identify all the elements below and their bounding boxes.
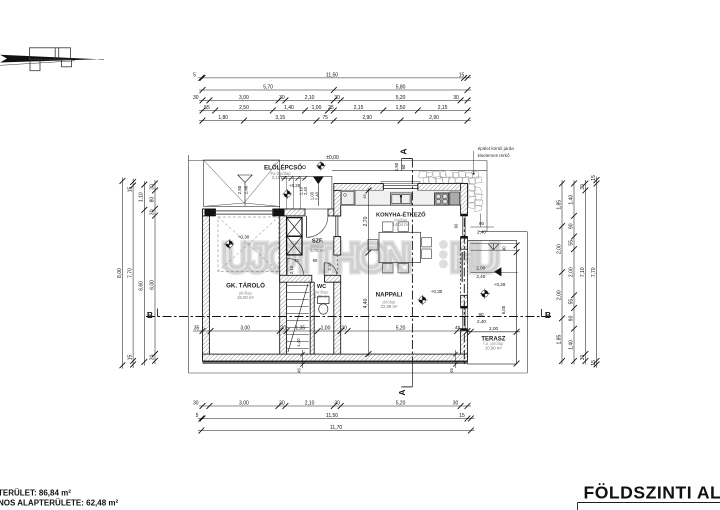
svg-text:30: 30 xyxy=(279,400,285,406)
svg-text:22,88 m²: 22,88 m² xyxy=(381,304,399,309)
svg-text:2,90: 2,90 xyxy=(362,115,372,121)
svg-text:30: 30 xyxy=(453,400,459,406)
svg-text:30: 30 xyxy=(341,325,347,331)
svg-text:3,00: 3,00 xyxy=(239,400,249,406)
svg-text:5,80: 5,80 xyxy=(396,84,406,90)
svg-text:4,40: 4,40 xyxy=(363,298,369,308)
svg-text:+0,28: +0,28 xyxy=(289,183,301,188)
svg-text:55: 55 xyxy=(568,240,574,246)
svg-text:1,35: 1,35 xyxy=(295,325,305,331)
svg-text:90: 90 xyxy=(568,223,574,229)
svg-text:2,40: 2,40 xyxy=(477,319,486,324)
svg-text:5,20: 5,20 xyxy=(396,325,406,331)
svg-text:2,10: 2,10 xyxy=(327,262,332,271)
svg-text:3,00: 3,00 xyxy=(239,95,249,101)
svg-text:45: 45 xyxy=(449,368,454,373)
svg-text:45: 45 xyxy=(363,194,367,198)
svg-text:2,10: 2,10 xyxy=(305,400,315,406)
svg-text:FÖLDSZINTI ALAPRAJZ: FÖLDSZINTI ALAPRAJZ xyxy=(584,483,720,503)
svg-text:2,40: 2,40 xyxy=(476,274,485,279)
svg-text:5: 5 xyxy=(196,413,199,419)
svg-text:11,50: 11,50 xyxy=(326,72,338,78)
svg-text:30: 30 xyxy=(453,95,459,101)
svg-text:1,40: 1,40 xyxy=(568,340,574,350)
svg-text:5,00: 5,00 xyxy=(501,305,506,314)
svg-text:1,80 m²: 1,80 m² xyxy=(314,294,329,299)
svg-text:30: 30 xyxy=(193,400,199,406)
svg-text:6,00: 6,00 xyxy=(149,280,155,290)
svg-text:2,00: 2,00 xyxy=(556,244,562,254)
svg-text:1,00: 1,00 xyxy=(312,105,322,111)
svg-text:6,60: 6,60 xyxy=(139,281,145,291)
svg-text:15: 15 xyxy=(459,72,465,78)
svg-text:45: 45 xyxy=(296,368,301,373)
svg-text:55: 55 xyxy=(568,299,574,305)
svg-text:10,90 m²: 10,90 m² xyxy=(485,346,503,351)
svg-text:30: 30 xyxy=(193,95,199,101)
svg-text:30: 30 xyxy=(149,354,155,360)
svg-text:15: 15 xyxy=(128,187,134,193)
svg-text:30: 30 xyxy=(334,95,340,101)
svg-text:30: 30 xyxy=(149,209,155,215)
svg-text:15: 15 xyxy=(591,175,597,181)
svg-text:2,15: 2,15 xyxy=(354,105,364,111)
svg-text:1,40: 1,40 xyxy=(568,195,574,205)
svg-text:±0,00: ±0,00 xyxy=(326,155,339,161)
svg-text:2,70: 2,70 xyxy=(363,216,369,226)
svg-text:2,40: 2,40 xyxy=(303,186,308,195)
svg-text:5,20: 5,20 xyxy=(396,95,406,101)
svg-text:8,00: 8,00 xyxy=(117,268,123,278)
svg-text:HU: HU xyxy=(450,235,500,281)
svg-text:3,15: 3,15 xyxy=(275,115,285,121)
svg-text:1,80: 1,80 xyxy=(218,115,228,121)
svg-text:épület körüli járda: épület körüli járda xyxy=(478,146,515,151)
svg-text:NAPPALI: NAPPALI xyxy=(376,291,403,298)
svg-text:2,40: 2,40 xyxy=(315,191,320,200)
svg-text:55: 55 xyxy=(204,105,210,111)
svg-text:2,00: 2,00 xyxy=(556,290,562,300)
svg-text:75: 75 xyxy=(322,115,328,121)
svg-text:2,48: 2,48 xyxy=(244,185,249,194)
svg-text:1,10: 1,10 xyxy=(139,192,145,202)
svg-text:2,90: 2,90 xyxy=(429,115,439,121)
svg-text:GK. TÁROLÓ: GK. TÁROLÓ xyxy=(226,281,265,289)
svg-text:18,00 m²: 18,00 m² xyxy=(237,295,255,300)
svg-text:35: 35 xyxy=(194,325,200,331)
svg-text:+0,30: +0,30 xyxy=(238,234,250,239)
svg-text:25: 25 xyxy=(328,105,334,111)
svg-text:90: 90 xyxy=(454,223,459,228)
svg-text:kiselemes térkő: kiselemes térkő xyxy=(478,153,510,158)
svg-text:1,40: 1,40 xyxy=(296,338,301,347)
svg-text:+0,28: +0,28 xyxy=(494,282,506,287)
svg-text:30: 30 xyxy=(580,184,586,190)
svg-text:NOS ALAPTERÜLETE: 62,48 m²: NOS ALAPTERÜLETE: 62,48 m² xyxy=(0,498,119,507)
svg-text:15: 15 xyxy=(459,413,465,419)
svg-text:30: 30 xyxy=(280,325,286,331)
svg-text:15: 15 xyxy=(591,360,597,366)
svg-text:14,04 m²: 14,04 m² xyxy=(392,222,410,227)
svg-text:45: 45 xyxy=(455,325,461,331)
svg-text:7,70: 7,70 xyxy=(128,268,134,278)
svg-text:2,10: 2,10 xyxy=(305,95,315,101)
svg-text:5,76 m²: 5,76 m² xyxy=(310,248,325,253)
svg-text:60: 60 xyxy=(401,164,406,169)
svg-text:90: 90 xyxy=(313,258,318,263)
svg-text:90: 90 xyxy=(568,315,574,321)
svg-text:2,00: 2,00 xyxy=(568,267,574,277)
svg-text:30: 30 xyxy=(502,246,507,251)
svg-text:2,15: 2,15 xyxy=(438,105,448,111)
svg-text:5,70: 5,70 xyxy=(263,84,273,90)
svg-text:5,20: 5,20 xyxy=(396,400,406,406)
svg-text:1,85: 1,85 xyxy=(556,200,562,210)
svg-text:90: 90 xyxy=(479,221,485,226)
svg-text:2,40: 2,40 xyxy=(477,229,486,234)
svg-text:3,00: 3,00 xyxy=(240,325,250,331)
svg-text:A: A xyxy=(397,389,407,395)
svg-text:11,70: 11,70 xyxy=(330,425,342,431)
svg-text:2,50: 2,50 xyxy=(237,185,242,194)
svg-text:1,85: 1,85 xyxy=(556,335,562,345)
svg-text:A: A xyxy=(398,148,408,154)
svg-text:30: 30 xyxy=(334,400,340,406)
svg-text:TERÜLET: 86,84 m²: TERÜLET: 86,84 m² xyxy=(0,489,71,498)
svg-text:15: 15 xyxy=(128,355,134,361)
svg-text:B: B xyxy=(147,310,153,320)
svg-text:2,10: 2,10 xyxy=(289,265,294,274)
svg-text:1,50: 1,50 xyxy=(396,105,406,111)
svg-text:1,50: 1,50 xyxy=(394,162,399,171)
svg-text:B: B xyxy=(545,310,551,320)
svg-text:1,00: 1,00 xyxy=(321,325,331,331)
svg-text:1,40: 1,40 xyxy=(284,105,294,111)
svg-text:+0,30: +0,30 xyxy=(431,289,443,294)
svg-text:5: 5 xyxy=(193,72,196,78)
svg-text:2,00: 2,00 xyxy=(476,266,485,271)
svg-text:30: 30 xyxy=(279,95,285,101)
svg-text:80: 80 xyxy=(149,197,155,203)
svg-text:11,50: 11,50 xyxy=(326,413,338,419)
svg-text:2,50: 2,50 xyxy=(239,105,249,111)
svg-text:30: 30 xyxy=(580,355,586,361)
svg-text:2,00: 2,00 xyxy=(489,326,498,331)
svg-text:30: 30 xyxy=(149,184,155,190)
svg-text:7,70: 7,70 xyxy=(591,267,597,277)
svg-text:7,10: 7,10 xyxy=(580,267,586,277)
